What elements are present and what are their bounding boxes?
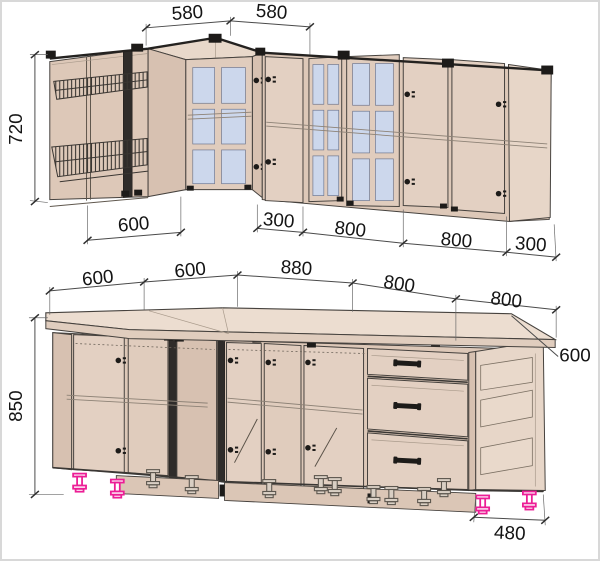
open-door-edge: [123, 51, 132, 198]
kitchen-drawing-page: 720 580 580 600: [0, 0, 600, 561]
upper-left-cabinet: [50, 49, 155, 207]
base-door-3: [177, 338, 217, 481]
base-left-wing: [53, 333, 225, 483]
dim-label-upper-800a: 800: [334, 217, 367, 241]
dim-label-upper-300a: 300: [262, 208, 295, 232]
corner-cabinet-right-face: [252, 53, 262, 198]
base-cabinets-drawing: 850 600 600 880 800 800 600: [5, 256, 591, 544]
dim-label-corner-width-left: 580: [171, 2, 204, 24]
corner-post: [218, 341, 225, 483]
base-door-a: [227, 343, 262, 485]
dim-label-counter-depth: 600: [559, 344, 590, 365]
dim-label-corner-width-right: 580: [255, 2, 288, 23]
dim-label-base-600a: 600: [81, 265, 114, 289]
corner-glass-door: [186, 57, 253, 190]
upper-right-run: [262, 53, 551, 222]
accent-foot: [476, 495, 489, 513]
base-door-b: [264, 344, 301, 487]
upper-glass-door-left: [309, 57, 342, 202]
accent-foot: [523, 491, 536, 509]
upper-plain-door-right: [452, 60, 505, 214]
upper-cabinets-drawing: 720 580 580 600: [5, 2, 560, 261]
dim-label-base-800a: 800: [382, 271, 416, 297]
upper-corner-glass-cabinet: [148, 38, 264, 198]
hinge-hardware: [134, 190, 142, 196]
dim-label-upper-height: 720: [5, 113, 26, 144]
dim-label-base-800b: 800: [489, 287, 523, 312]
dim-label-base-600b: 600: [173, 257, 206, 281]
base-door-c: [304, 346, 364, 490]
corner-filler-post: [169, 337, 177, 479]
upper-door-300: [265, 57, 303, 203]
accent-foot: [73, 474, 86, 492]
dim-label-base-880: 880: [280, 256, 313, 279]
base-door-2: [128, 337, 168, 476]
drawer-unit: [368, 349, 476, 491]
dim-label-end-width: 480: [494, 521, 527, 544]
kitchen-cabinet-drawing: 720 580 580 600: [2, 2, 598, 559]
dim-label-upper-800b: 800: [440, 228, 473, 252]
hinge-hardware: [121, 191, 129, 197]
base-left-side-panel: [53, 333, 72, 470]
dim-label-upper-300b: 300: [514, 232, 547, 255]
dim-label-upper-600: 600: [117, 212, 150, 236]
base-end-panel: [476, 341, 546, 491]
corner-cabinet-left-face: [148, 49, 186, 197]
upper-plain-door-left: [403, 58, 448, 208]
dim-label-base-height: 850: [5, 390, 26, 421]
